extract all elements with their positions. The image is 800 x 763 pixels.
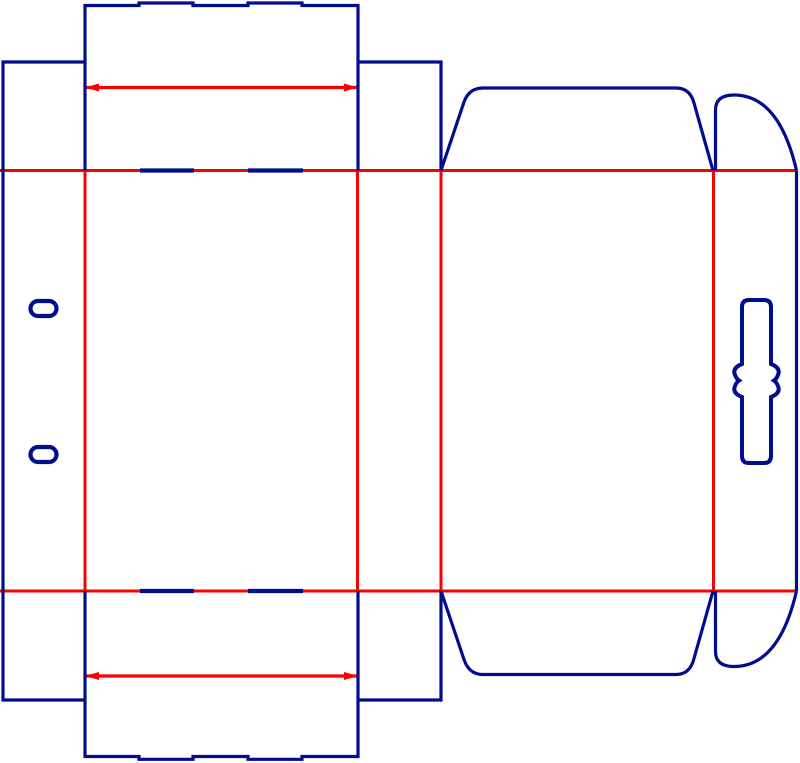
back-top-flap-outline [441,88,713,171]
glue-column-outline [3,62,85,700]
back-bottom-flap-outline [441,591,713,675]
tuck-crease-bottom-arrow-left [85,672,99,680]
top-right-dust-flap [358,62,441,171]
tuck-crease-bottom-arrow-right [344,672,358,680]
box-dieline-canvas [0,0,800,763]
tuck-crease-top-arrow-right [344,84,358,92]
top-ear-tab-outline [716,95,797,171]
hang-slot-cutout [734,300,778,463]
bottom-ear-tab-outline [716,591,797,667]
tuck-crease-top-arrow-left [85,84,99,92]
glue-slot-bottom [31,447,57,462]
glue-slot-top [31,301,57,316]
bottom-right-dust-flap [358,591,441,700]
dieline-svg [0,0,800,763]
